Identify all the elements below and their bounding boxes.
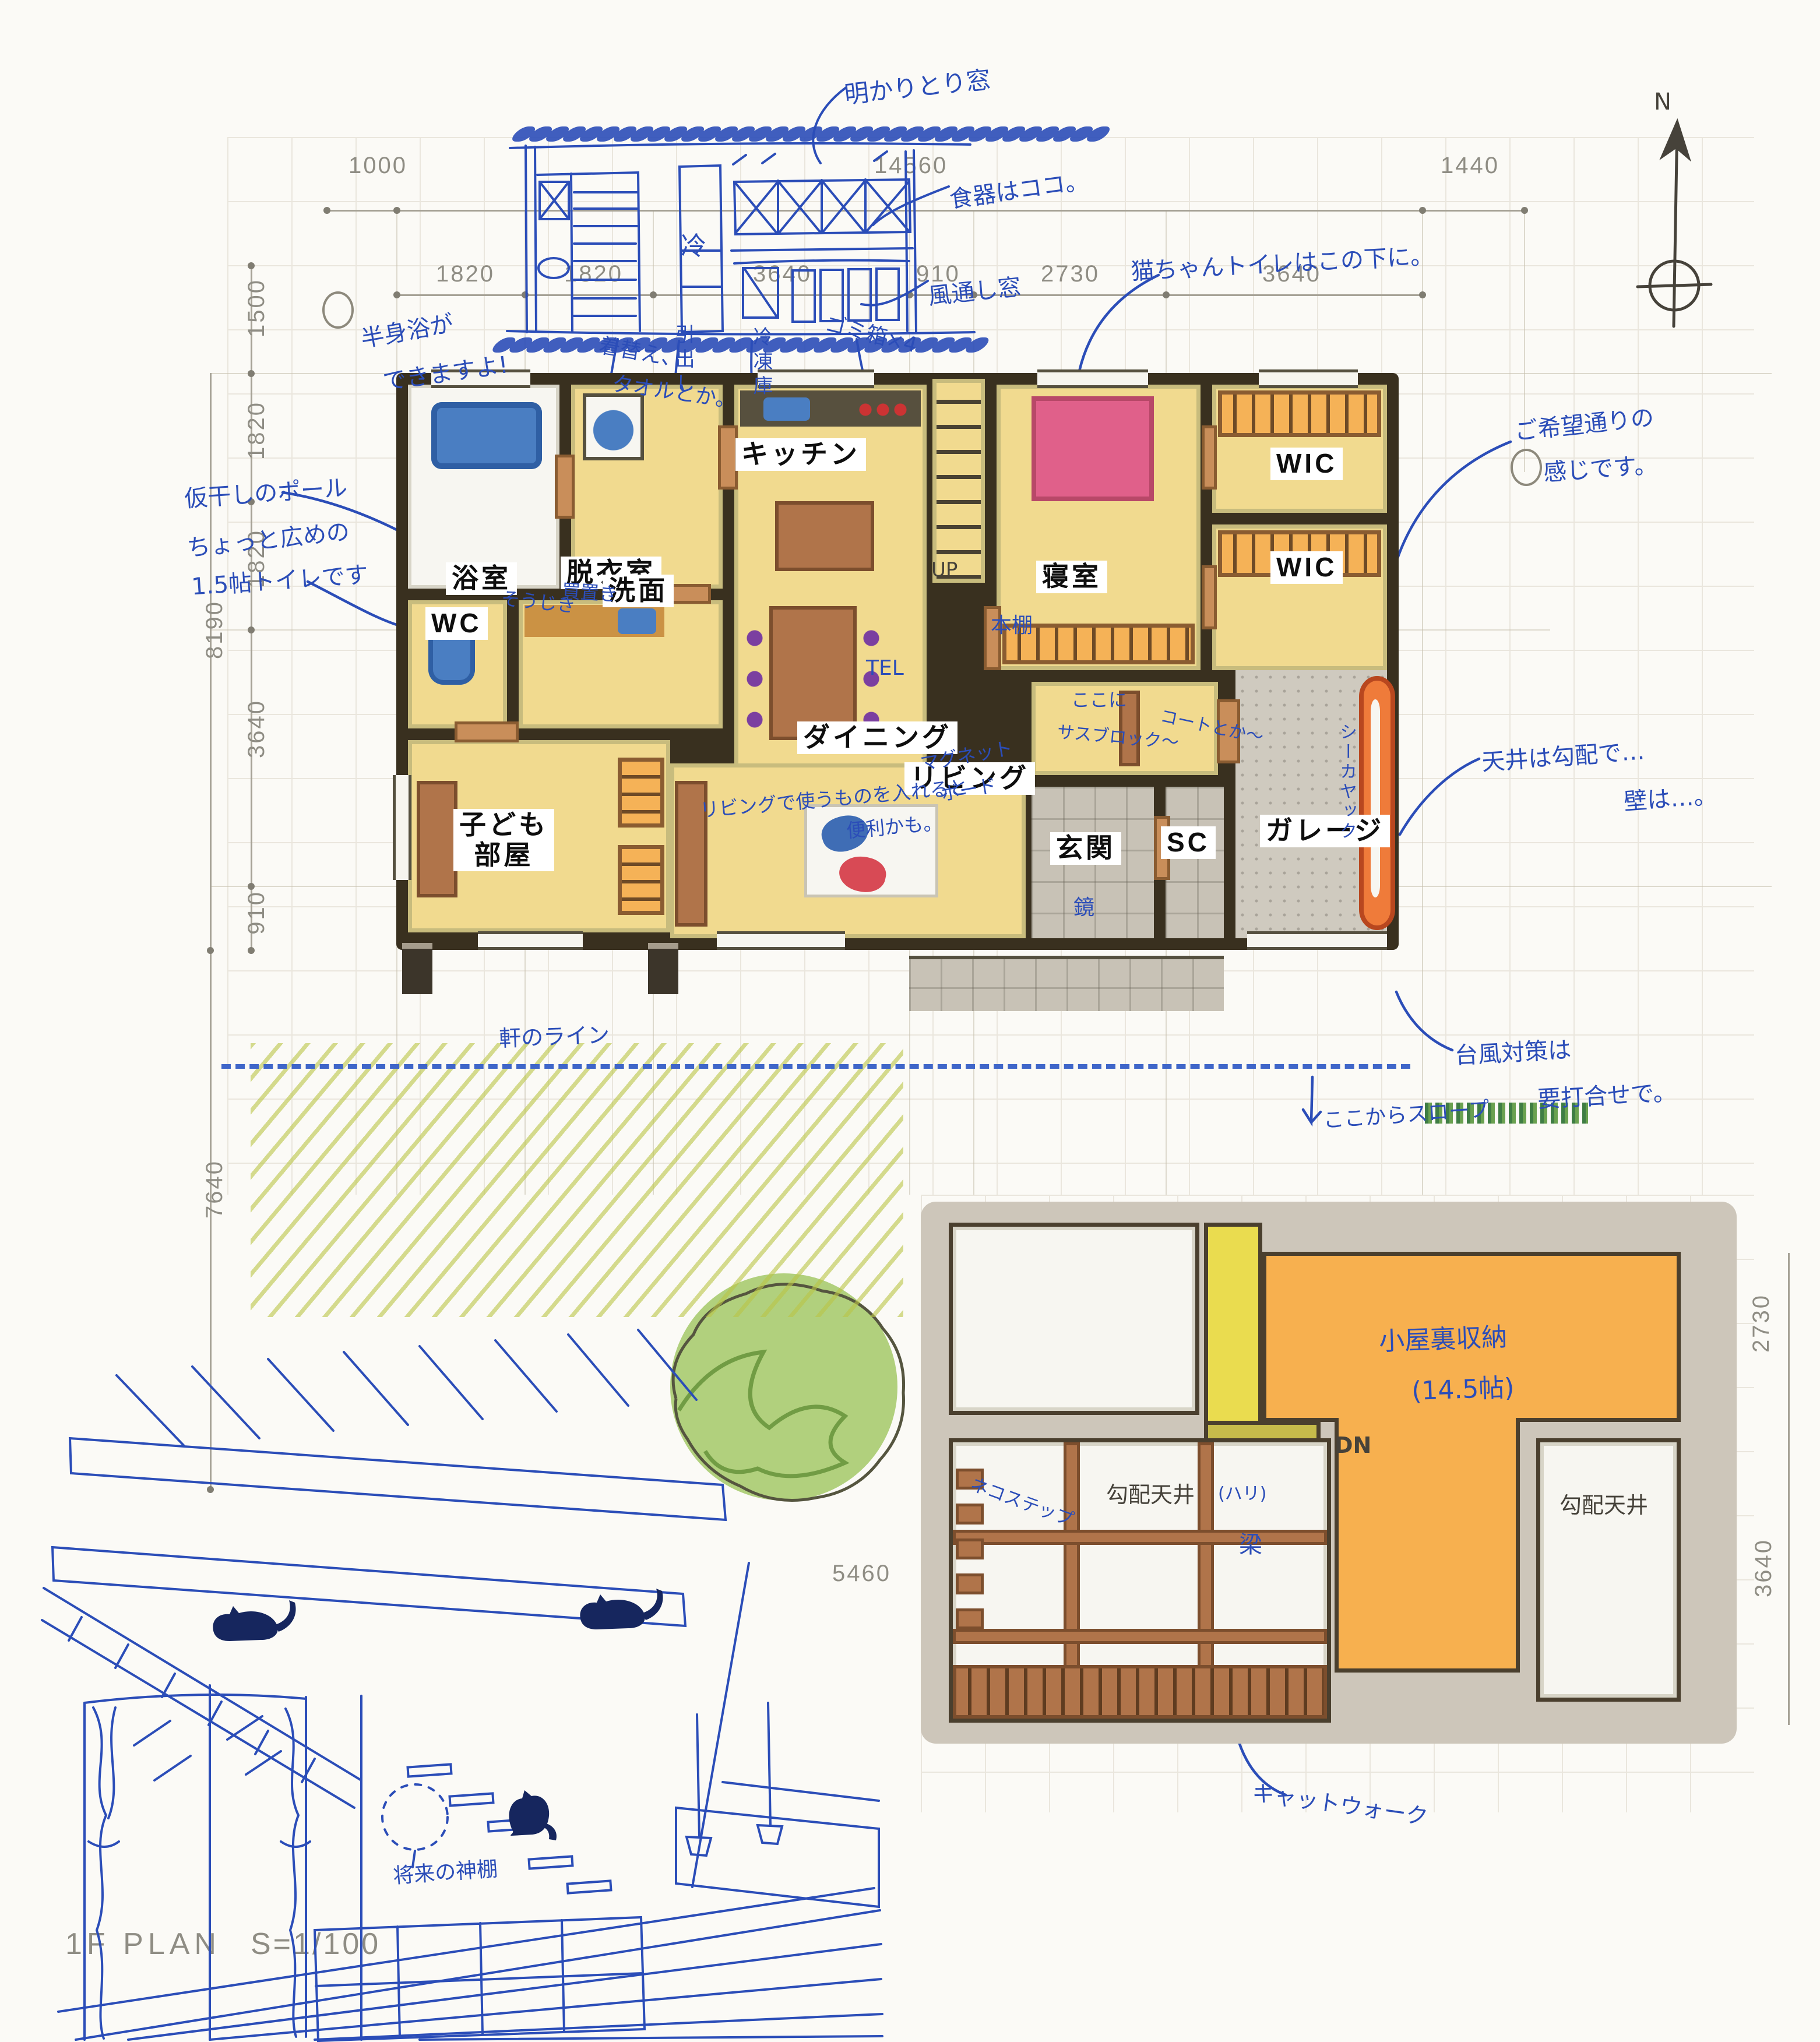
note-sloped-right: 勾配天井 bbox=[1560, 1487, 1648, 1519]
lawn bbox=[251, 1043, 903, 1317]
porch-post bbox=[648, 949, 678, 994]
dining-chairs bbox=[746, 618, 763, 728]
attic-room-right bbox=[1536, 1438, 1681, 1702]
label-wic-lower: WIC bbox=[1270, 551, 1343, 584]
window bbox=[1037, 369, 1148, 388]
room-sc bbox=[1166, 787, 1224, 938]
label-garage: ガレージ bbox=[1260, 815, 1390, 847]
label-kids: 子ども 部屋 bbox=[453, 809, 554, 871]
bed bbox=[1032, 396, 1154, 501]
note-kayak: シーカヤック bbox=[1333, 723, 1359, 842]
note-mirror: 鏡 bbox=[1073, 890, 1094, 921]
door bbox=[455, 721, 519, 742]
attic-catwalk-deck bbox=[953, 1665, 1327, 1719]
kids-desk-2 bbox=[618, 845, 664, 915]
window bbox=[393, 775, 411, 880]
note-stock: 買置き bbox=[561, 576, 619, 607]
label-wic-upper: WIC bbox=[1270, 448, 1343, 480]
label-sc: SC bbox=[1161, 826, 1216, 859]
porch-post bbox=[402, 949, 432, 994]
kitchen-island-table bbox=[775, 501, 874, 571]
attic-room-topleft bbox=[949, 1223, 1199, 1415]
cat-step bbox=[956, 1573, 984, 1594]
washing-machine bbox=[583, 393, 644, 460]
door bbox=[1202, 425, 1217, 490]
note-attic-storage1: 小屋裏収納 bbox=[1378, 1316, 1508, 1358]
cat-step bbox=[956, 1538, 984, 1559]
attic-stairs bbox=[1204, 1223, 1262, 1425]
kitchen-stove bbox=[857, 401, 909, 418]
note-ceil2: 壁は…。 bbox=[1622, 776, 1718, 816]
label-up: UP bbox=[931, 558, 957, 582]
label-kids-line2: 部屋 bbox=[474, 840, 534, 870]
note-freezer: 冷凍庫 bbox=[747, 326, 776, 400]
note-bookshelf: 本棚 bbox=[991, 608, 1033, 639]
window bbox=[478, 931, 583, 950]
note-beam2: 梁 bbox=[1239, 1526, 1262, 1559]
label-dn: DN bbox=[1335, 1432, 1371, 1458]
label-kitchen: キッチン bbox=[735, 438, 866, 471]
dining-table bbox=[769, 606, 857, 740]
bathtub bbox=[431, 402, 542, 469]
eaves-dashed-line bbox=[221, 1064, 1410, 1069]
note-fridge: 冷 bbox=[681, 225, 706, 262]
cat-step bbox=[956, 1504, 984, 1525]
note-beam1: (ハリ) bbox=[1218, 1479, 1266, 1505]
stairs-up bbox=[932, 379, 985, 583]
door bbox=[718, 425, 738, 490]
attic-beam-horizontal bbox=[953, 1629, 1327, 1644]
cat-silhouette bbox=[213, 1589, 663, 1840]
note-sloped-left: 勾配天井 bbox=[1106, 1477, 1195, 1509]
kids-desk-1 bbox=[618, 758, 664, 828]
note-entry1: ここに bbox=[1071, 685, 1127, 712]
label-entrance: 玄関 bbox=[1050, 832, 1121, 865]
note-tel: TEL bbox=[866, 656, 904, 680]
cat-step bbox=[956, 1608, 984, 1629]
kitchen-sink bbox=[763, 397, 810, 421]
label-kids-line1: 子ども bbox=[459, 809, 548, 840]
north-label: N bbox=[1654, 89, 1671, 115]
window bbox=[717, 931, 845, 950]
perspective-sketch bbox=[35, 1253, 909, 2040]
wic-upper-closet bbox=[1218, 390, 1381, 437]
label-bedroom: 寝室 bbox=[1036, 561, 1107, 593]
note-eaves: 軒のライン bbox=[498, 1017, 610, 1053]
sea-kayak-cockpit bbox=[1371, 699, 1380, 897]
kids-wardrobe bbox=[417, 781, 457, 897]
window bbox=[1259, 369, 1358, 388]
note-typhoon1: 台風対策は bbox=[1454, 1031, 1572, 1071]
door bbox=[1202, 565, 1217, 629]
label-wc: WC bbox=[425, 607, 488, 640]
note-attic-storage2: (14.5帖) bbox=[1411, 1367, 1515, 1407]
door bbox=[555, 455, 575, 519]
garage-shutter bbox=[1247, 931, 1387, 950]
attic-beam-horizontal bbox=[953, 1530, 1327, 1545]
wash-sink bbox=[618, 608, 656, 634]
entrance-porch bbox=[909, 956, 1224, 1011]
